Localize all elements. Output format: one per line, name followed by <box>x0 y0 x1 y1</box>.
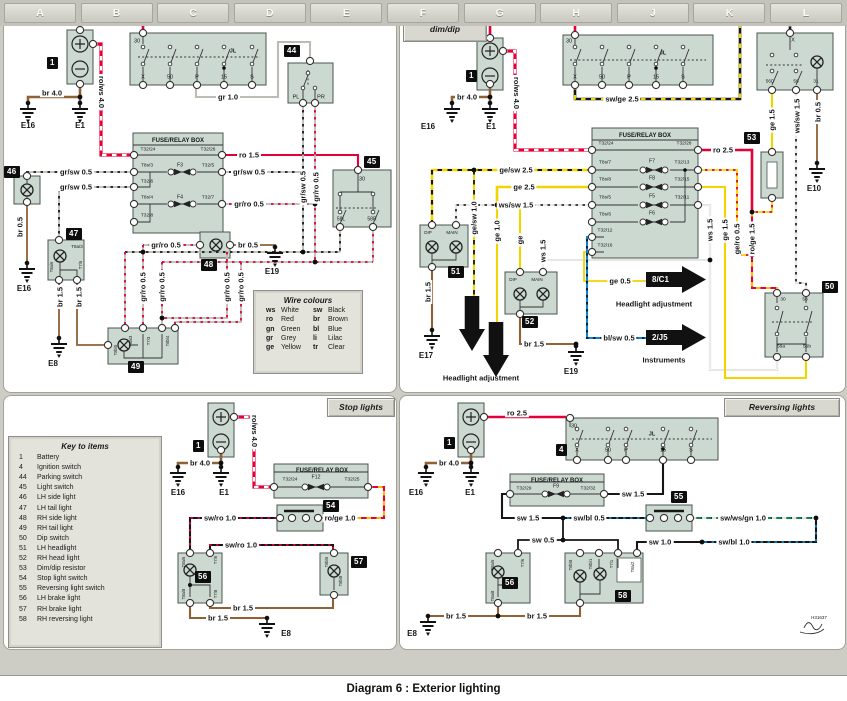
key-item-53: 53Dim/dip resistor <box>19 565 161 572</box>
wire-colour-name: Yellow <box>281 344 313 351</box>
key-item-55: 55Reversing light switch <box>19 585 161 592</box>
key-item-label: RH head light <box>37 555 79 562</box>
key-item-label: LH tail light <box>37 505 72 512</box>
wire-colour-code: sw <box>313 307 328 314</box>
grid-tab-h: H <box>540 3 612 23</box>
wire-colour-code: gn <box>266 326 281 333</box>
wire-colour-name: Red <box>281 316 313 323</box>
key-item-number: 49 <box>19 525 37 532</box>
wire-colour-code: br <box>313 316 328 323</box>
grid-tab-j: J <box>617 3 689 23</box>
key-item-label: RH tail light <box>37 525 73 532</box>
key-item-label: LH brake light <box>37 595 80 602</box>
wire-colour-row: grGreyliLilac <box>266 335 362 342</box>
wire-colour-code: gr <box>266 335 281 342</box>
wire-colour-name: Black <box>328 307 360 314</box>
key-item-number: 45 <box>19 484 37 491</box>
wire-colours-legend: Wire colours wsWhiteswBlackroRedbrBrowng… <box>253 290 363 374</box>
key-item-number: 58 <box>19 616 37 623</box>
key-item-number: 54 <box>19 575 37 582</box>
key-item-label: Dim/dip resistor <box>37 565 86 572</box>
key-item-number: 44 <box>19 474 37 481</box>
wire-colours-rows: wsWhiteswBlackroRedbrBrowngnGreenblBlueg… <box>254 307 362 351</box>
wire-colour-code: ws <box>266 307 281 314</box>
key-item-number: 51 <box>19 545 37 552</box>
key-item-49: 49RH tail light <box>19 525 161 532</box>
wire-colour-name: White <box>281 307 313 314</box>
key-item-52: 52RH head light <box>19 555 161 562</box>
wire-colour-row: roRedbrBrown <box>266 316 362 323</box>
grid-tab-e: E <box>310 3 382 23</box>
key-item-50: 50Dip switch <box>19 535 161 542</box>
key-item-label: Parking switch <box>37 474 82 481</box>
key-item-label: Dip switch <box>37 535 69 542</box>
key-item-number: 4 <box>19 464 37 471</box>
key-item-number: 50 <box>19 535 37 542</box>
signature-scribble <box>800 623 824 634</box>
wire-colours-title: Wire colours <box>254 296 362 305</box>
key-item-number: 55 <box>19 585 37 592</box>
key-item-number: 53 <box>19 565 37 572</box>
section-header-stop: Stop lights <box>327 398 395 417</box>
key-item-number: 52 <box>19 555 37 562</box>
grid-tab-f: F <box>387 3 459 23</box>
grid-tab-c: C <box>157 3 229 23</box>
key-item-58: 58RH reversing light <box>19 616 161 623</box>
wire-colour-name: Green <box>281 326 313 333</box>
diagram-title: Diagram 6 : Exterior lighting <box>347 683 501 695</box>
key-item-44: 44Parking switch <box>19 474 161 481</box>
key-item-45: 45Light switch <box>19 484 161 491</box>
key-item-label: LH headlight <box>37 545 76 552</box>
key-item-label: Battery <box>37 454 59 461</box>
key-to-items-rows: 1Battery4Ignition switch44Parking switch… <box>9 454 161 623</box>
grid-tab-l: L <box>770 3 842 23</box>
key-item-51: 51LH headlight <box>19 545 161 552</box>
key-item-label: RH side light <box>37 515 77 522</box>
wire-colour-name: Brown <box>328 316 360 323</box>
key-item-4: 4Ignition switch <box>19 464 161 471</box>
wire-colour-code: li <box>313 335 328 342</box>
wire-colour-code: ge <box>266 344 281 351</box>
wire-colour-row: wsWhiteswBlack <box>266 307 362 314</box>
tr-wiring <box>420 15 833 378</box>
wire-colour-name: Grey <box>281 335 313 342</box>
wire-colour-code: bl <box>313 326 328 333</box>
key-item-number: 47 <box>19 505 37 512</box>
key-item-label: RH brake light <box>37 606 81 613</box>
key-item-56: 56LH brake light <box>19 595 161 602</box>
wire-colour-row: geYellowtrClear <box>266 344 362 351</box>
grid-reference-strip: ABCDEFGHJKL <box>0 0 847 26</box>
manual-page: Side and tail lights Headlights dim/dip … <box>0 0 847 701</box>
grid-tab-k: K <box>693 3 765 23</box>
key-item-1: 1Battery <box>19 454 161 461</box>
wire-colour-code: ro <box>266 316 281 323</box>
grid-tab-a: A <box>4 3 76 23</box>
wire-colour-name: Blue <box>328 326 360 333</box>
key-item-number: 57 <box>19 606 37 613</box>
key-item-label: Ignition switch <box>37 464 81 471</box>
key-item-number: 48 <box>19 515 37 522</box>
key-item-57: 57RH brake light <box>19 606 161 613</box>
br-wiring <box>418 403 824 636</box>
grid-tab-b: B <box>81 3 153 23</box>
key-to-items-title: Key to items <box>9 442 161 451</box>
section-header-reversing: Reversing lights <box>724 398 840 417</box>
wire-colour-name: Lilac <box>328 335 360 342</box>
key-item-number: 1 <box>19 454 37 461</box>
key-item-46: 46LH side light <box>19 494 161 501</box>
key-item-label: LH side light <box>37 494 76 501</box>
diagram-title-bar: Diagram 6 : Exterior lighting <box>0 675 847 701</box>
section-title: Reversing lights <box>749 402 815 413</box>
key-item-number: 46 <box>19 494 37 501</box>
bl-wiring <box>170 403 384 638</box>
key-item-label: Stop light switch <box>37 575 88 582</box>
wire-colour-row: gnGreenblBlue <box>266 326 362 333</box>
key-item-label: RH reversing light <box>37 616 93 623</box>
key-item-48: 48RH side light <box>19 515 161 522</box>
grid-tab-d: D <box>234 3 306 23</box>
key-to-items-legend: Key to items 1Battery4Ignition switch44P… <box>8 436 162 648</box>
key-item-label: Light switch <box>37 484 74 491</box>
key-item-label: Reversing light switch <box>37 585 105 592</box>
grid-tab-g: G <box>464 3 536 23</box>
key-item-number: 56 <box>19 595 37 602</box>
section-title: Stop lights <box>339 402 383 413</box>
wire-colour-name: Clear <box>328 344 360 351</box>
key-item-47: 47LH tail light <box>19 505 161 512</box>
wire-colour-code: tr <box>313 344 328 351</box>
key-item-54: 54Stop light switch <box>19 575 161 582</box>
